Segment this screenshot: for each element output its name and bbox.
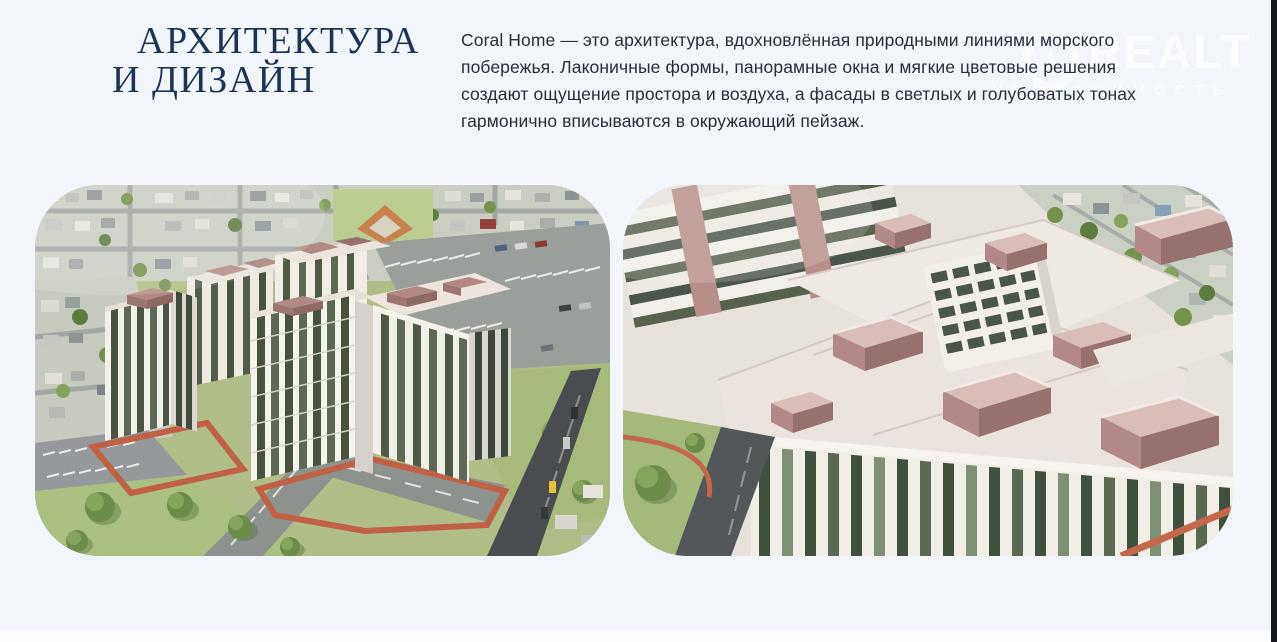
bottom-strip <box>0 630 1271 642</box>
title-line-1: АРХИТЕКТУРА <box>137 22 420 61</box>
paragraph-line: побережья. Лаконичные формы, панорамные … <box>461 54 1136 81</box>
render-aerial-wide-image <box>35 185 610 556</box>
architecture-section: REALT НЕДВИЖИМОСТЬ АРХИТЕКТУРА И ДИЗАЙН … <box>0 0 1277 642</box>
intro-paragraph: Coral Home — это архитектура, вдохновлён… <box>461 27 1136 135</box>
title-line-2: И ДИЗАЙН <box>112 61 420 100</box>
render-aerial-closeup-image <box>623 185 1233 556</box>
baseball-field <box>333 189 433 245</box>
paragraph-line: Coral Home — это архитектура, вдохновлён… <box>461 27 1136 54</box>
paragraph-line: гармонично вписываются в окружающий пейз… <box>461 108 1136 135</box>
render-aerial-closeup-scene <box>623 185 1233 556</box>
page-title: АРХИТЕКТУРА И ДИЗАЙН <box>112 22 420 100</box>
paragraph-line: создают ощущение простора и воздуха, а ф… <box>461 81 1136 108</box>
render-aerial-wide-scene <box>35 185 610 556</box>
screen-edge-bar <box>1271 0 1277 642</box>
